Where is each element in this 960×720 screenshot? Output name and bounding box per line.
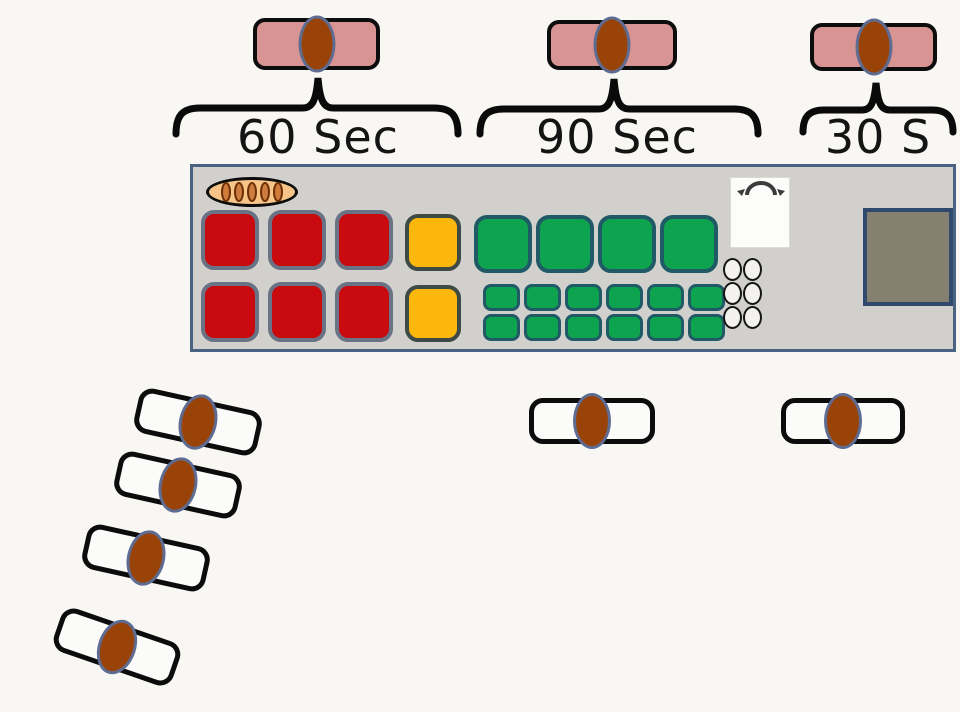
red-patty	[335, 282, 393, 342]
person-marker	[298, 16, 335, 73]
green-item-small	[688, 314, 725, 341]
green-small-grid	[483, 284, 725, 341]
red-patty	[268, 210, 326, 270]
egg	[743, 282, 762, 305]
tray-item	[273, 182, 283, 202]
green-item-small	[606, 314, 643, 341]
green-item-large	[474, 215, 532, 273]
green-item-small	[565, 284, 602, 311]
green-item-small	[524, 284, 561, 311]
egg-grid	[723, 258, 762, 329]
pink-station-30	[810, 23, 937, 71]
red-patty	[201, 282, 259, 342]
person-marker	[153, 454, 202, 517]
tray-item	[247, 182, 257, 202]
green-item-small	[647, 314, 684, 341]
egg	[723, 258, 742, 281]
yellow-item	[405, 285, 461, 342]
tray-item	[260, 182, 270, 202]
zone-label-30: 30 S	[825, 114, 931, 160]
zone-label-60: 60 Sec	[237, 114, 399, 160]
egg	[743, 258, 762, 281]
tray-item	[221, 182, 231, 202]
person-marker	[594, 17, 631, 74]
zone-label-90: 90 Sec	[536, 114, 698, 160]
red-grid	[201, 210, 393, 342]
green-item-small	[606, 284, 643, 311]
green-item-small	[483, 284, 520, 311]
pink-station-90	[547, 20, 677, 70]
person-marker	[121, 527, 170, 590]
queue-station-4	[50, 605, 184, 690]
warming-square	[863, 208, 953, 306]
green-item-small	[688, 284, 725, 311]
scale-icon	[730, 177, 790, 248]
green-item-small	[483, 314, 520, 341]
egg	[723, 306, 742, 329]
green-item-small	[565, 314, 602, 341]
green-item-large	[660, 215, 718, 273]
floor-station-right	[781, 398, 905, 444]
tray-item	[234, 182, 244, 202]
green-item-small	[647, 284, 684, 311]
diagram-canvas: 60 Sec 90 Sec 30 S	[0, 0, 960, 712]
yellow-stack	[405, 214, 461, 342]
pink-station-60	[253, 18, 380, 70]
grill-station	[190, 164, 956, 352]
queue-station-3	[80, 522, 213, 594]
person-marker	[855, 19, 892, 76]
red-patty	[201, 210, 259, 270]
bun-tray	[206, 177, 298, 207]
green-item-small	[524, 314, 561, 341]
queue-station-2	[112, 449, 245, 521]
green-item-large	[598, 215, 656, 273]
floor-station-middle	[529, 398, 655, 444]
person-marker	[824, 393, 862, 449]
red-patty	[268, 282, 326, 342]
egg	[743, 306, 762, 329]
person-marker	[173, 391, 222, 454]
green-item-large	[536, 215, 594, 273]
egg	[723, 282, 742, 305]
green-large-row	[474, 215, 718, 273]
yellow-item	[405, 214, 461, 271]
red-patty	[335, 210, 393, 270]
queue-station-1	[132, 386, 265, 458]
person-marker	[573, 393, 611, 449]
person-marker	[90, 614, 144, 679]
